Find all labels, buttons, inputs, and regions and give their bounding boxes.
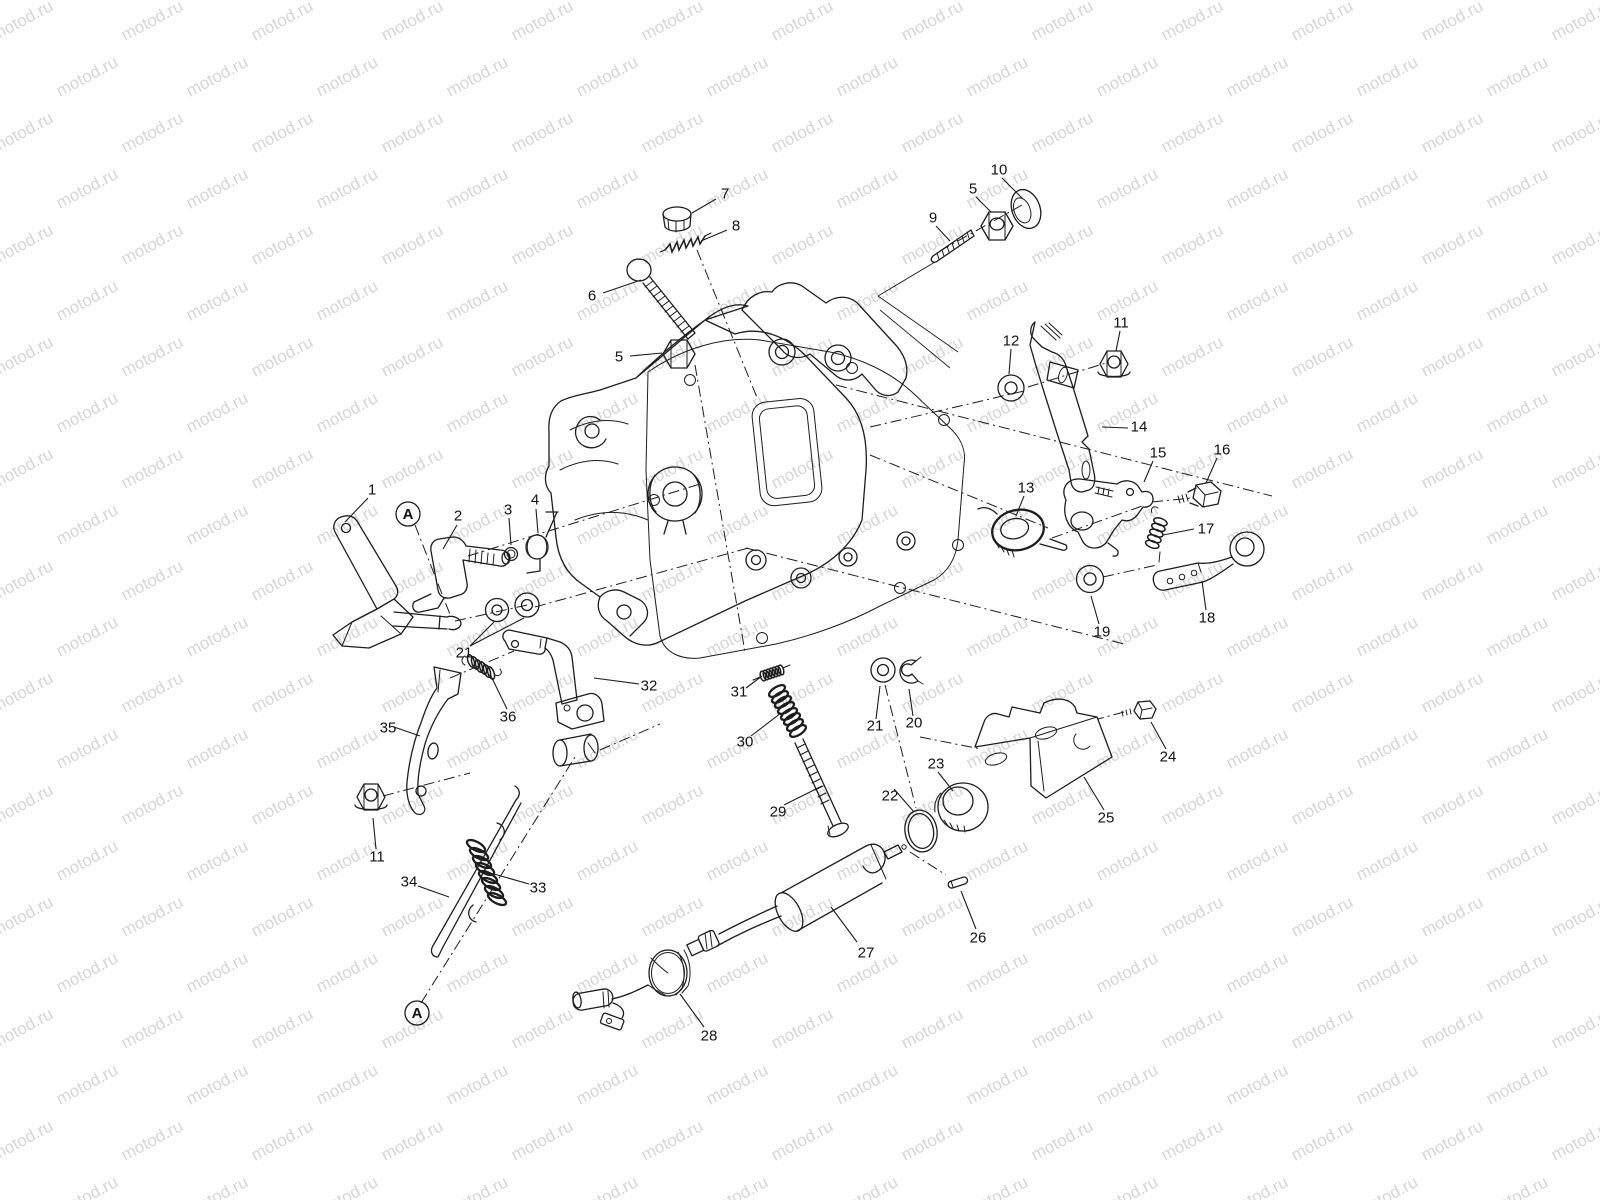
part-label-22: 22 (882, 788, 899, 805)
watermark-text: motod.ru (378, 668, 446, 716)
watermark-text: motod.ru (118, 108, 186, 156)
watermark-text: motod.ru (703, 612, 771, 660)
watermark-text: motod.ru (378, 0, 446, 45)
part-label-12: 12 (1003, 333, 1020, 350)
part-label-28: 28 (701, 1028, 718, 1045)
watermark-text: motod.ru (1418, 444, 1486, 492)
watermark-text: motod.ru (313, 948, 381, 996)
watermark-text: motod.ru (508, 892, 576, 940)
watermark-text: motod.ru (0, 668, 56, 716)
ref-marker-letter: A (403, 506, 414, 523)
watermark-text: motod.ru (118, 556, 186, 604)
part-bolt-24 (1122, 701, 1156, 719)
watermark-text: motod.ru (118, 1116, 186, 1164)
part-label-18: 18 (1199, 610, 1216, 627)
watermark-text: motod.ru (1418, 220, 1486, 268)
part-label-21: 21 (456, 645, 473, 662)
watermark-text: motod.ru (53, 388, 121, 436)
watermark-text: motod.ru (638, 0, 706, 45)
watermark-text: motod.ru (248, 1116, 316, 1164)
watermark-text: motod.ru (1418, 0, 1486, 45)
watermark-text: motod.ru (703, 164, 771, 212)
watermark-text: motod.ru (183, 612, 251, 660)
watermark-text: motod.ru (1548, 108, 1600, 156)
watermark-text: motod.ru (118, 892, 186, 940)
part-label-2: 2 (454, 508, 462, 525)
part-label-31: 31 (731, 684, 748, 701)
watermark-text: motod.ru (703, 1172, 771, 1200)
watermark-text: motod.ru (1353, 1060, 1421, 1108)
watermark-text: motod.ru (1483, 52, 1551, 100)
watermark-text: motod.ru (638, 220, 706, 268)
pointer-line (878, 296, 958, 352)
part-label-24: 24 (1160, 749, 1177, 766)
watermark-text: motod.ru (898, 1004, 966, 1052)
part-bolt-6 (627, 259, 695, 339)
watermark-text: motod.ru (248, 668, 316, 716)
part-washer-21b (871, 658, 895, 682)
watermark-text: motod.ru (1028, 0, 1096, 45)
watermark-text: motod.ru (1158, 1004, 1226, 1052)
watermark-text: motod.ru (1483, 164, 1551, 212)
watermark-text: motod.ru (183, 1060, 251, 1108)
watermark-text: motod.ru (1353, 500, 1421, 548)
watermark-text: motod.ru (183, 836, 251, 884)
watermark-text: motod.ru (248, 332, 316, 380)
watermark-text: motod.ru (898, 892, 966, 940)
watermark-text: motod.ru (1353, 948, 1421, 996)
watermark-text: motod.ru (1548, 0, 1600, 45)
watermark-text: motod.ru (1093, 1172, 1161, 1200)
watermark-text: motod.ru (1288, 444, 1356, 492)
watermark-text: motod.ru (833, 52, 901, 100)
watermark-text: motod.ru (1418, 556, 1486, 604)
watermark-text: motod.ru (638, 556, 706, 604)
watermark-text: motod.ru (53, 276, 121, 324)
part-label-33: 33 (530, 880, 547, 897)
watermark-text: motod.ru (768, 444, 836, 492)
watermark-text: motod.ru (1158, 1116, 1226, 1164)
part-ring-3 (505, 548, 518, 561)
watermark-text: motod.ru (1093, 52, 1161, 100)
part-label-32: 32 (641, 678, 658, 695)
leader-line-3 (509, 518, 511, 545)
watermark-text: motod.ru (53, 948, 121, 996)
watermark-text: motod.ru (1028, 444, 1096, 492)
watermark-text: motod.ru (1483, 276, 1551, 324)
watermark-text: motod.ru (1353, 1172, 1421, 1200)
part-label-11: 11 (369, 849, 385, 866)
watermark-text: motod.ru (703, 1060, 771, 1108)
watermark-text: motod.ru (703, 948, 771, 996)
watermark-text: motod.ru (1548, 220, 1600, 268)
leader-line-32 (594, 678, 639, 684)
watermark-text: motod.ru (53, 1172, 121, 1200)
part-label-3: 3 (504, 502, 512, 519)
part-cylinder-head-cover (545, 283, 964, 658)
watermark-text: motod.ru (1548, 780, 1600, 828)
leader-line-27 (831, 907, 857, 942)
watermark-text: motod.ru (378, 108, 446, 156)
watermark-text: motod.ru (0, 332, 56, 380)
leader-line-17 (1163, 529, 1194, 535)
watermark-text: motod.ru (1223, 948, 1291, 996)
watermark-text: motod.ru (1158, 220, 1226, 268)
projection-line (910, 852, 946, 875)
watermark-text: motod.ru (1548, 556, 1600, 604)
watermark-text: motod.ru (638, 1116, 706, 1164)
projection-line (1103, 565, 1157, 577)
watermark-text: motod.ru (1223, 164, 1291, 212)
watermark-text: motod.ru (443, 948, 511, 996)
watermark-text: motod.ru (183, 1172, 251, 1200)
watermark-text: motod.ru (1548, 332, 1600, 380)
watermark-text: motod.ru (1158, 668, 1226, 716)
part-label-17: 17 (1198, 521, 1215, 538)
projection-line (697, 250, 758, 400)
watermark-text: motod.ru (1548, 1004, 1600, 1052)
watermark-text: motod.ru (1418, 780, 1486, 828)
watermark-text: motod.ru (768, 108, 836, 156)
watermark-text: motod.ru (638, 108, 706, 156)
watermark-text: motod.ru (1353, 836, 1421, 884)
watermark-text: motod.ru (1158, 108, 1226, 156)
watermark-text: motod.ru (963, 500, 1031, 548)
part-label-8: 8 (732, 218, 740, 235)
watermark-text: motod.ru (508, 444, 576, 492)
watermark-text: motod.ru (1353, 612, 1421, 660)
leader-line-11 (1116, 331, 1120, 351)
part-label-26: 26 (970, 930, 987, 947)
watermark-text: motod.ru (963, 1172, 1031, 1200)
watermark-text: motod.ru (248, 220, 316, 268)
watermark-text: motod.ru (443, 724, 511, 772)
watermark-text: motod.ru (638, 1004, 706, 1052)
watermark-text: motod.ru (1288, 108, 1356, 156)
watermark-text: motod.ru (898, 332, 966, 380)
watermark-text: motod.ru (248, 892, 316, 940)
watermark-text: motod.ru (573, 52, 641, 100)
watermark-text: motod.ru (313, 52, 381, 100)
watermark-text: motod.ru (378, 332, 446, 380)
part-label-14: 14 (1131, 419, 1148, 436)
watermark-text: motod.ru (1288, 0, 1356, 45)
watermark-text: motod.ru (508, 332, 576, 380)
watermark-text: motod.ru (1158, 0, 1226, 45)
watermark-text: motod.ru (703, 52, 771, 100)
watermark-text: motod.ru (573, 724, 641, 772)
watermark-text: motod.ru (963, 276, 1031, 324)
watermark-text: motod.ru (1418, 1116, 1486, 1164)
watermark-text: motod.ru (963, 836, 1031, 884)
watermark-text: motod.ru (1028, 1116, 1096, 1164)
watermark-text: motod.ru (1093, 836, 1161, 884)
part-label-29: 29 (770, 804, 787, 821)
watermark-text: motod.ru (1028, 892, 1096, 940)
leader-line-12 (1009, 349, 1011, 374)
watermark-text: motod.ru (833, 1060, 901, 1108)
watermark-text: motod.ru (183, 164, 251, 212)
watermark-text: motod.ru (118, 668, 186, 716)
watermark-text: motod.ru (963, 52, 1031, 100)
part-label-23: 23 (928, 756, 945, 773)
watermark-text: motod.ru (573, 612, 641, 660)
watermark-text: motod.ru (963, 724, 1031, 772)
watermark-text: motod.ru (1158, 332, 1226, 380)
leader-line-18 (1202, 581, 1206, 610)
watermark-text: motod.ru (963, 1060, 1031, 1108)
watermark-text: motod.ru (183, 388, 251, 436)
watermark-text: motod.ru (1028, 556, 1096, 604)
part-label-20: 20 (906, 715, 923, 732)
watermark-text: motod.ru (1028, 220, 1096, 268)
watermark-text: motod.ru (833, 500, 901, 548)
watermark-text: motod.ru (0, 892, 56, 940)
part-label-30: 30 (737, 734, 754, 751)
watermark-text: motod.ru (183, 276, 251, 324)
watermark-text: motod.ru (0, 780, 56, 828)
watermark-text: motod.ru (0, 1116, 56, 1164)
watermark-text: motod.ru (508, 1116, 576, 1164)
watermark-text: motod.ru (963, 948, 1031, 996)
watermark-text: motod.ru (1483, 1060, 1551, 1108)
watermark-text: motod.ru (1223, 500, 1291, 548)
watermark-text: motod.ru (53, 164, 121, 212)
watermark-text: motod.ru (1028, 1004, 1096, 1052)
watermark-text: motod.ru (508, 108, 576, 156)
part-label-11: 11 (1113, 315, 1129, 332)
watermark-text: motod.ru (443, 1172, 511, 1200)
watermark-text: motod.ru (1483, 612, 1551, 660)
watermark-text: motod.ru (1288, 892, 1356, 940)
part-label-6: 6 (588, 288, 596, 305)
watermark-text: motod.ru (573, 1060, 641, 1108)
watermark-text: motod.ru (118, 1004, 186, 1052)
watermark-text: motod.ru (248, 108, 316, 156)
watermark-text: motod.ru (573, 500, 641, 548)
watermark-text: motod.ru (313, 500, 381, 548)
watermark-text: motod.ru (443, 164, 511, 212)
watermark-text: motod.ru (248, 0, 316, 45)
watermark-text: motod.ru (313, 1060, 381, 1108)
watermark-text: motod.ru (508, 1004, 576, 1052)
watermark-text: motod.ru (833, 612, 901, 660)
watermark-text: motod.ru (1483, 1172, 1551, 1200)
watermark-text: motod.ru (703, 500, 771, 548)
part-nut-11b (355, 784, 387, 810)
part-label-35: 35 (380, 720, 397, 737)
watermark-text: motod.ru (768, 1004, 836, 1052)
watermark-text: motod.ru (313, 164, 381, 212)
part-bolt-16 (1178, 482, 1221, 507)
leader-line-36 (490, 674, 507, 709)
watermark-text: motod.ru (833, 1172, 901, 1200)
watermark-text: motod.ru (1418, 892, 1486, 940)
watermark-text: motod.ru (1288, 1116, 1356, 1164)
watermark-text: motod.ru (1093, 388, 1161, 436)
part-label-13: 13 (1018, 480, 1035, 497)
watermark-layer: motod.rumotod.rumotod.rumotod.rumotod.ru… (0, 0, 1600, 1200)
part-label-10: 10 (991, 162, 1008, 179)
watermark-text: motod.ru (833, 836, 901, 884)
part-label-5: 5 (969, 181, 977, 198)
watermark-text: motod.ru (1223, 52, 1291, 100)
watermark-text: motod.ru (1483, 836, 1551, 884)
watermark-text: motod.ru (898, 444, 966, 492)
watermark-text: motod.ru (248, 556, 316, 604)
watermark-text: motod.ru (1223, 388, 1291, 436)
watermark-text: motod.ru (53, 500, 121, 548)
watermark-text: motod.ru (0, 1004, 56, 1052)
watermark-text: motod.ru (1418, 668, 1486, 716)
watermark-text: motod.ru (53, 724, 121, 772)
leader-line-4 (536, 509, 538, 533)
watermark-text: motod.ru (1353, 276, 1421, 324)
watermark-text: motod.ru (313, 388, 381, 436)
watermark-text: motod.ru (1418, 1004, 1486, 1052)
part-e-clip-20 (900, 657, 923, 684)
watermark-text: motod.ru (1288, 1004, 1356, 1052)
watermark-text: motod.ru (1223, 1060, 1291, 1108)
watermark-text: motod.ru (443, 612, 511, 660)
part-label-15: 15 (1150, 445, 1167, 462)
watermark-text: motod.ru (638, 892, 706, 940)
leader-line-21 (876, 686, 880, 719)
watermark-text: motod.ru (768, 0, 836, 45)
part-label-1: 1 (368, 482, 376, 499)
watermark-text: motod.ru (1223, 1172, 1291, 1200)
diagram-page: motod.rumotod.rumotod.rumotod.rumotod.ru… (0, 0, 1600, 1200)
watermark-text: motod.ru (118, 0, 186, 45)
watermark-text: motod.ru (443, 52, 511, 100)
watermark-text: motod.ru (0, 0, 56, 45)
projection-line (1152, 498, 1192, 502)
watermark-text: motod.ru (1418, 108, 1486, 156)
watermark-text: motod.ru (53, 836, 121, 884)
watermark-text: motod.ru (1483, 500, 1551, 548)
part-label-19: 19 (1094, 624, 1111, 641)
watermark-text: motod.ru (1483, 948, 1551, 996)
watermark-text: motod.ru (1483, 388, 1551, 436)
part-label-7: 7 (721, 186, 729, 203)
watermark-text: motod.ru (313, 1172, 381, 1200)
watermark-text: motod.ru (1548, 444, 1600, 492)
watermark-text: motod.ru (0, 108, 56, 156)
watermark-text: motod.ru (768, 220, 836, 268)
exploded-parts-drawing: motod.rumotod.rumotod.rumotod.rumotod.ru… (0, 0, 1600, 1200)
watermark-text: motod.ru (53, 52, 121, 100)
part-label-5: 5 (615, 349, 623, 366)
watermark-text: motod.ru (0, 556, 56, 604)
part-nut-5b (981, 212, 1013, 240)
part-label-9: 9 (929, 210, 937, 227)
watermark-text: motod.ru (443, 836, 511, 884)
watermark-text: motod.ru (378, 892, 446, 940)
watermark-text: motod.ru (443, 1060, 511, 1108)
watermark-text: motod.ru (313, 276, 381, 324)
watermark-text: motod.ru (1158, 892, 1226, 940)
watermark-text: motod.ru (313, 612, 381, 660)
watermark-text: motod.ru (118, 780, 186, 828)
watermark-text: motod.ru (183, 948, 251, 996)
part-label-21: 21 (867, 718, 884, 735)
part-plug-7 (663, 207, 691, 232)
leader-line-33 (494, 874, 529, 884)
watermark-text: motod.ru (183, 724, 251, 772)
watermark-text: motod.ru (1158, 556, 1226, 604)
watermark-text: motod.ru (1288, 220, 1356, 268)
watermark-text: motod.ru (573, 164, 641, 212)
watermark-text: motod.ru (1223, 276, 1291, 324)
watermark-text: motod.ru (1353, 724, 1421, 772)
watermark-text: motod.ru (963, 612, 1031, 660)
watermark-text: motod.ru (1288, 668, 1356, 716)
projection-line (920, 737, 981, 749)
watermark-text: motod.ru (573, 1172, 641, 1200)
watermark-text: motod.ru (53, 612, 121, 660)
watermark-text: motod.ru (443, 276, 511, 324)
watermark-text: motod.ru (1288, 332, 1356, 380)
watermark-text: motod.ru (118, 444, 186, 492)
watermark-text: motod.ru (898, 108, 966, 156)
watermark-text: motod.ru (508, 668, 576, 716)
watermark-text: motod.ru (1288, 556, 1356, 604)
projection-line (1098, 712, 1124, 719)
watermark-text: motod.ru (1093, 1060, 1161, 1108)
watermark-text: motod.ru (1158, 780, 1226, 828)
watermark-text: motod.ru (378, 1116, 446, 1164)
watermark-text: motod.ru (508, 780, 576, 828)
watermark-text: motod.ru (53, 1060, 121, 1108)
watermark-text: motod.ru (1028, 668, 1096, 716)
watermark-text: motod.ru (443, 388, 511, 436)
watermark-text: motod.ru (1418, 332, 1486, 380)
watermark-text: motod.ru (1028, 108, 1096, 156)
watermark-text: motod.ru (1353, 164, 1421, 212)
projection-line (746, 548, 1124, 644)
watermark-text: motod.ru (833, 164, 901, 212)
watermark-text: motod.ru (1548, 1116, 1600, 1164)
part-label-36: 36 (500, 709, 517, 726)
watermark-text: motod.ru (703, 836, 771, 884)
watermark-text: motod.ru (1353, 52, 1421, 100)
watermark-text: motod.ru (378, 220, 446, 268)
watermark-text: motod.ru (1223, 724, 1291, 772)
watermark-text: motod.ru (1093, 948, 1161, 996)
watermark-text: motod.ru (118, 332, 186, 380)
watermark-text: motod.ru (248, 1004, 316, 1052)
part-label-34: 34 (401, 874, 418, 891)
watermark-text: motod.ru (1548, 668, 1600, 716)
leader-line-35 (394, 727, 420, 736)
watermark-text: motod.ru (508, 220, 576, 268)
watermark-text: motod.ru (183, 52, 251, 100)
ref-marker-letter: A (412, 1005, 423, 1022)
watermark-text: motod.ru (1093, 724, 1161, 772)
watermark-text: motod.ru (573, 836, 641, 884)
watermark-text: motod.ru (378, 780, 446, 828)
watermark-text: motod.ru (0, 444, 56, 492)
watermark-text: motod.ru (898, 1116, 966, 1164)
watermark-text: motod.ru (1223, 836, 1291, 884)
watermark-text: motod.ru (1093, 164, 1161, 212)
part-label-27: 27 (858, 945, 875, 962)
watermark-text: motod.ru (0, 220, 56, 268)
watermark-text: motod.ru (1353, 388, 1421, 436)
watermark-text: motod.ru (183, 500, 251, 548)
watermark-text: motod.ru (248, 780, 316, 828)
watermark-text: motod.ru (1288, 780, 1356, 828)
